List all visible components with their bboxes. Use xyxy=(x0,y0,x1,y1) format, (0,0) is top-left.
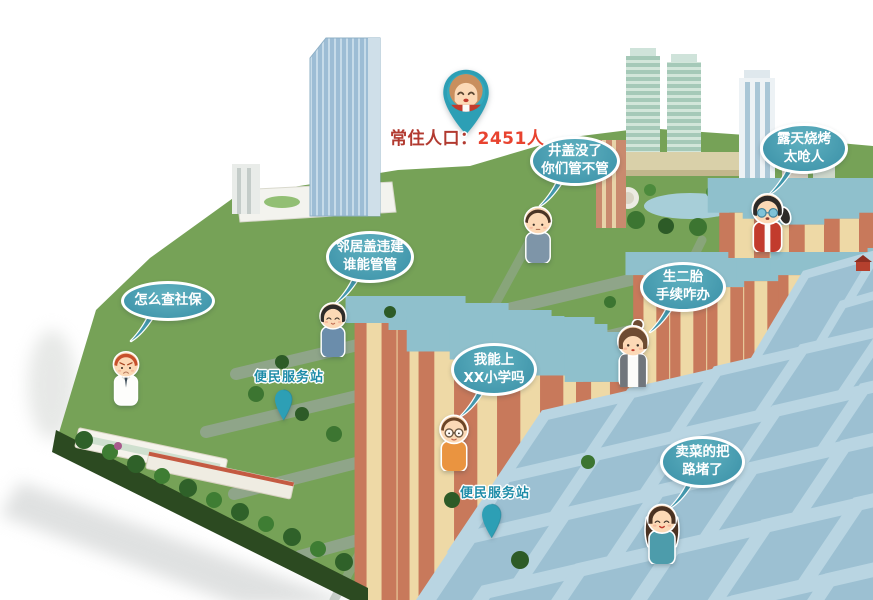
service-station-label: 便民服务站 xyxy=(445,482,545,501)
location-pin-icon[interactable] xyxy=(481,502,502,540)
central-skyscraper xyxy=(232,38,396,222)
speech-bubble-social-security: 怎么查社保 xyxy=(121,281,215,321)
speech-bubble-street-vendor: 卖菜的把 路堵了 xyxy=(660,436,745,488)
speech-bubble-illegal-construction: 邻居盖违建 谁能管管 xyxy=(326,231,414,283)
population-stat: 常住人口：2451人 xyxy=(390,124,544,149)
community-infographic: 常住人口：2451人 怎么查社保 邻居盖违建 谁能管管 井盖没了 你们管不管 我… xyxy=(0,0,873,600)
avatar-woman-glasses-ponytail xyxy=(743,188,792,252)
population-value: 2451人 xyxy=(478,129,545,149)
population-label: 常住人口： xyxy=(390,129,478,149)
service-station-label: 便民服务站 xyxy=(239,366,339,385)
avatar-woman-bob-hair xyxy=(312,297,354,357)
speech-bubble-bbq-smoke: 露天烧烤 太呛人 xyxy=(760,123,848,174)
avatar-worried-man-social-security xyxy=(106,346,146,406)
avatar-woman-hair-bun xyxy=(609,319,657,387)
speech-bubble-school-admission: 我能上 XX小学吗 xyxy=(451,343,537,396)
speech-bubble-second-child: 生二胎 手续咋办 xyxy=(640,262,726,312)
avatar-young-man-blue-shirt xyxy=(516,201,560,263)
location-pin-icon[interactable] xyxy=(274,388,293,422)
avatar-boy-with-glasses xyxy=(431,409,477,471)
avatar-woman-long-hair xyxy=(639,498,685,564)
